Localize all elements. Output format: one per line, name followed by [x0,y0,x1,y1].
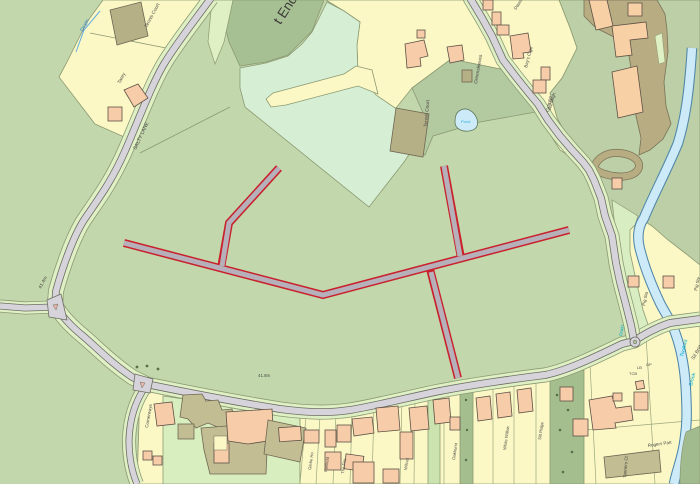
svg-text:GP: GP [646,362,652,367]
svg-text:Pond: Pond [461,119,470,124]
svg-text:TCB: TCB [629,371,637,376]
svg-text:41.8m: 41.8m [258,373,271,378]
svg-text:LB: LB [637,365,642,370]
